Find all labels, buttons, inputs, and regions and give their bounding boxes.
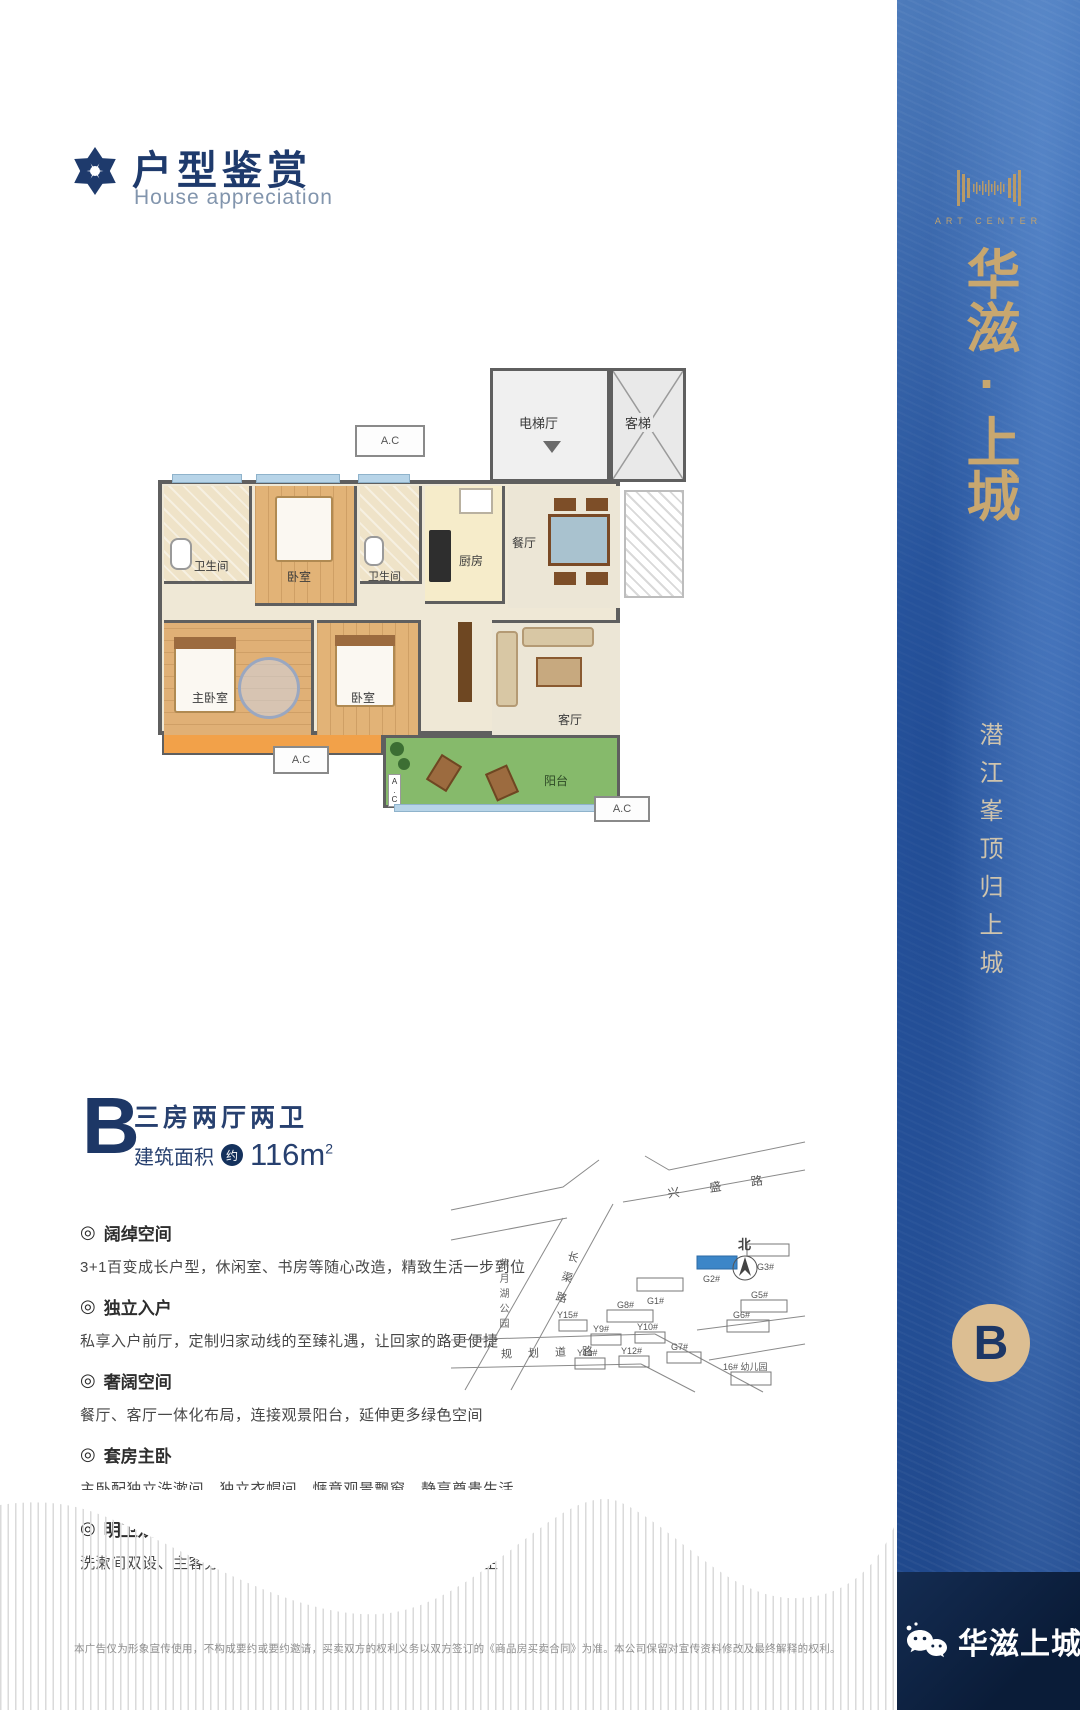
toilet-icon [364, 536, 384, 566]
dining-table-icon [548, 514, 610, 566]
map-building-label: G6# [733, 1310, 750, 1320]
bullet-icon: ◎ [80, 1444, 96, 1465]
room-label-bedroom-top: 卧室 [287, 568, 311, 585]
ac-unit-top: A.C [355, 425, 425, 457]
floor-plan: 电梯厅 客梯 A.C 卫生间 卧室 [158, 368, 686, 830]
ac-unit-bottom-right: A.C [594, 796, 650, 822]
rug-icon [238, 657, 300, 719]
room-elevator: 客梯 [610, 368, 686, 482]
feature-title: ◎独立入户 [80, 1294, 472, 1319]
sofa-icon [522, 627, 594, 647]
room-label-elevator-hall: 电梯厅 [519, 413, 558, 432]
room-label-kitchen: 厨房 [459, 552, 483, 569]
chair-icon [554, 572, 576, 585]
tv-cabinet-icon [458, 622, 472, 702]
map-building-label: G3# [757, 1262, 774, 1272]
room-bathroom-2: 卫生间 [360, 486, 422, 584]
map-park-label: 紫月湖公园 [495, 1258, 510, 1333]
room-label-dining: 餐厅 [512, 534, 536, 551]
room-master-bedroom: 主卧室 [164, 620, 314, 737]
map-building-label: G2# [703, 1274, 720, 1284]
room-kitchen: 厨房 [425, 486, 505, 604]
art-center-caption: ART CENTER [897, 216, 1080, 226]
room-label-bathroom-1: 卫生间 [194, 558, 229, 574]
window [358, 474, 410, 483]
art-center-logo-icon [957, 168, 1021, 208]
room-living: 客厅 [492, 620, 620, 737]
approx-badge: 约 [221, 1144, 243, 1166]
page-subtitle: House appreciation [134, 186, 333, 210]
disclaimer-text: 本广告仅为形象宣传使用，不构成要约或要约邀请，买卖双方的权利义务以双方签订的《商… [74, 1641, 834, 1656]
unit-area-row: 建筑面积 约 116m2 [134, 1137, 333, 1173]
bullet-icon: ◎ [80, 1296, 96, 1317]
map-building-label: Y10# [637, 1322, 658, 1332]
room-bathroom-1: 卫生间 [164, 486, 252, 584]
sidebar: ART CENTER 华滋·上城 潜江峯顶归上城 B [897, 0, 1080, 1710]
window [172, 474, 242, 483]
sidebar-slogan: 潜江峯顶归上城 [897, 722, 1080, 988]
poster-page: 户型鉴赏 House appreciation 电梯厅 客梯 A.C 卫生间 [0, 0, 1080, 1710]
chair-icon [586, 498, 608, 511]
map-building-label: G1# [647, 1296, 664, 1306]
area-value: 116m2 [250, 1137, 333, 1173]
unit-layout: 三房两厅两卫 [134, 1098, 308, 1134]
area-label: 建筑面积 [134, 1141, 214, 1170]
toilet-icon [170, 538, 192, 570]
ac-unit-bottom-left: A.C [273, 746, 329, 774]
window [256, 474, 340, 483]
footer-brand: 华滋上城 [958, 1619, 1080, 1663]
coffee-table-icon [536, 657, 582, 687]
room-bedroom-top: 卧室 [255, 486, 357, 606]
headboard-icon [174, 637, 236, 649]
chair-icon [554, 498, 576, 511]
site-map: G1# G2# G3# G5# G6# G7# G8# Y9# Y10# Y11… [445, 1072, 815, 1397]
room-label-elevator: 客梯 [623, 413, 653, 432]
unit-body: 卫生间 卧室 卫生间 厨房 餐厅 [158, 480, 620, 735]
feature-desc: 3+1百变成长户型，休闲室、书房等随心改造，精致生活一步到位 [80, 1256, 472, 1277]
feature-desc: 餐厅、客厅一体化布局，连接观景阳台，延伸更多绿色空间 [80, 1404, 472, 1425]
unit-badge: B [952, 1304, 1030, 1382]
sink-icon [459, 488, 493, 514]
bullet-icon: ◎ [80, 1370, 96, 1391]
room-dining: 餐厅 [508, 486, 620, 608]
sidebar-brand: 华滋·上城 [897, 246, 1080, 522]
plant-icon [398, 758, 410, 770]
feature-desc: 私享入户前厅，定制归家动线的至臻礼遇，让回家的路更便捷 [80, 1330, 472, 1351]
entry-arrow-icon [543, 441, 561, 453]
map-building-label: G8# [617, 1300, 634, 1310]
map-building-label: G7# [671, 1342, 688, 1352]
map-building-label: Y9# [593, 1324, 609, 1334]
north-needle-icon [739, 1257, 751, 1276]
room-elevator-hall: 电梯厅 [490, 368, 610, 482]
room-label-living: 客厅 [558, 711, 582, 728]
map-building-label: G5# [751, 1290, 768, 1300]
feature-title: ◎套房主卧 [80, 1442, 472, 1467]
ac-unit-balcony: A.C [388, 774, 401, 807]
window [394, 804, 610, 812]
unit-letter: B [82, 1086, 140, 1166]
map-north-label: 北 [738, 1234, 751, 1253]
decor-stripes [0, 1490, 897, 1710]
room-label-master-bedroom: 主卧室 [192, 689, 228, 706]
stripe-wave-mask [0, 1490, 897, 1710]
headboard-icon [335, 635, 395, 646]
shaft-void [624, 490, 684, 598]
flower-logo-icon [70, 143, 120, 199]
map-building-label: 16# 幼儿园 [723, 1361, 768, 1372]
map-building-label: Y12# [621, 1346, 642, 1356]
feature-title: ◎奢阔空间 [80, 1368, 472, 1393]
feature-title: ◎阔绰空间 [80, 1220, 472, 1245]
lounge-chair-icon [426, 754, 462, 792]
lounge-chair-icon [485, 764, 519, 801]
bullet-icon: ◎ [80, 1222, 96, 1243]
sidebar-footer: 华滋上城 [897, 1572, 1080, 1710]
plant-icon [390, 742, 404, 756]
bed-icon [275, 496, 333, 562]
room-label-bathroom-2: 卫生间 [368, 568, 401, 584]
room-bedroom-2: 卧室 [317, 620, 421, 737]
chair-icon [586, 572, 608, 585]
room-balcony: 阳台 A.C [383, 735, 620, 808]
wechat-icon [903, 1620, 949, 1662]
room-label-balcony: 阳台 [544, 772, 568, 789]
room-label-bedroom-2: 卧室 [351, 689, 375, 706]
sofa-icon [496, 631, 518, 707]
cooktop-icon [429, 530, 451, 582]
